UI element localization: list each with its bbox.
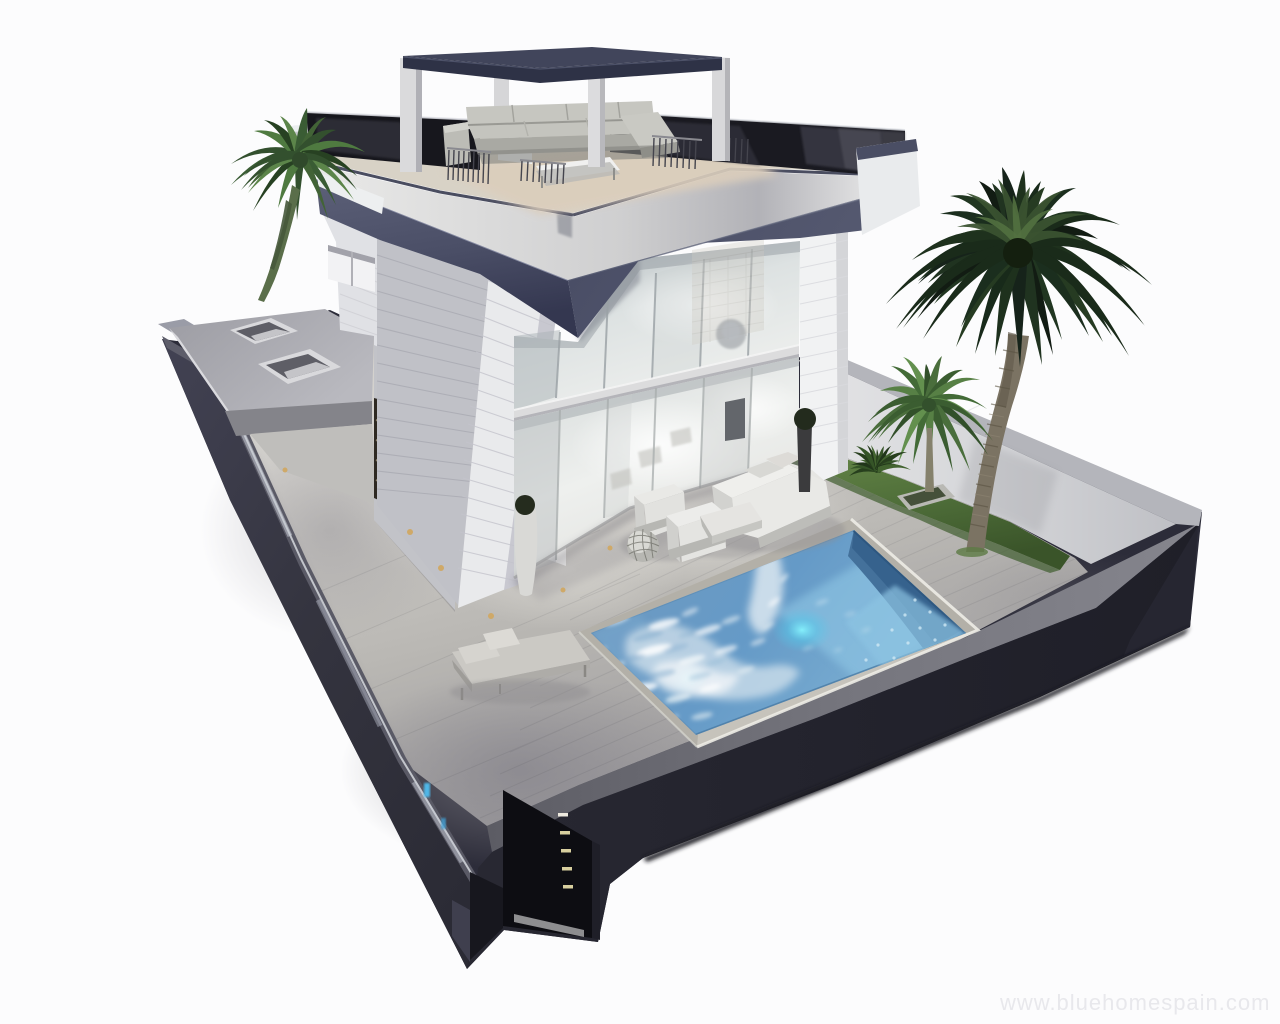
svg-text:www.bluehomespain.com: www.bluehomespain.com xyxy=(999,990,1270,1015)
